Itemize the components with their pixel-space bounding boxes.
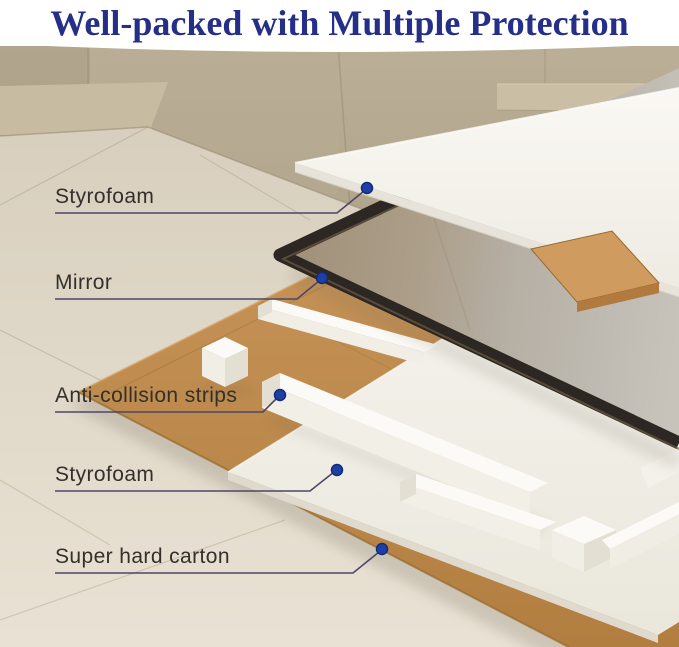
label-styrofoam-bottom: Styrofoam <box>55 462 154 488</box>
callout-dot-styrofoam-top <box>362 183 373 194</box>
callout-dot-mirror <box>317 273 328 284</box>
label-super-hard-carton: Super hard carton <box>55 544 230 570</box>
callout-dot-styrofoam-bottom <box>332 465 343 476</box>
page-title: Well-packed with Multiple Protection <box>50 2 628 44</box>
header-band: Well-packed with Multiple Protection <box>0 0 679 46</box>
callout-dot-anti-collision <box>275 390 286 401</box>
label-styrofoam-top: Styrofoam <box>55 184 154 210</box>
label-anti-collision-strips: Anti-collision strips <box>55 383 237 409</box>
label-mirror: Mirror <box>55 270 112 296</box>
callout-dot-carton <box>377 544 388 555</box>
product-image: Well-packed with Multiple Protection Sty… <box>0 0 679 647</box>
